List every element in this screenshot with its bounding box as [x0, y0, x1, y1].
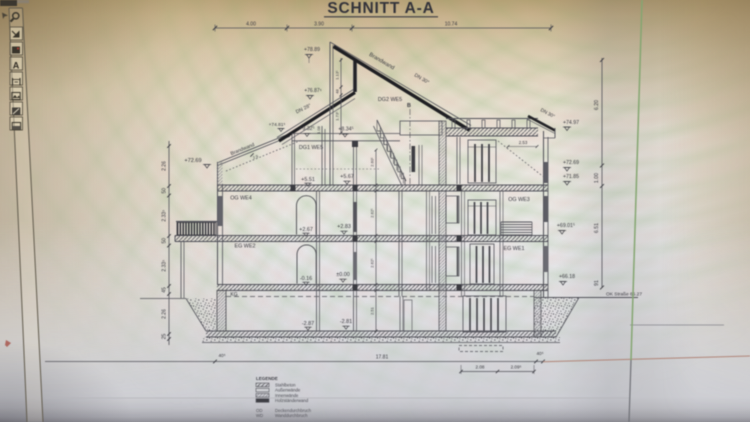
svg-text:40⁵: 40⁵ [536, 351, 543, 356]
svg-text:6.20: 6.20 [594, 100, 600, 110]
svg-text:DN 30°: DN 30° [413, 72, 430, 85]
svg-text:2.33⁵: 2.33⁵ [162, 210, 168, 222]
svg-text:+5.51: +5.51 [301, 177, 315, 183]
svg-text:Holzständerwand: Holzständerwand [275, 398, 309, 403]
svg-text:+2.83: +2.83 [337, 224, 351, 230]
svg-text:DG1 WE5: DG1 WE5 [299, 145, 323, 151]
svg-text:+66.18: +66.18 [559, 274, 575, 280]
svg-text:OG WE4: OG WE4 [230, 196, 252, 202]
svg-text:KG: KG [230, 292, 237, 298]
svg-text:3.90: 3.90 [314, 22, 324, 28]
svg-text:+76.87⁵: +76.87⁵ [304, 88, 322, 94]
svg-text:1.13⁵: 1.13⁵ [335, 70, 340, 80]
svg-text:2.33⁵: 2.33⁵ [162, 260, 168, 272]
svg-text:1.00: 1.00 [594, 173, 600, 183]
svg-text:Wanddurchbruch: Wanddurchbruch [275, 413, 308, 418]
svg-text:±0.00: ±0.00 [336, 272, 349, 278]
svg-text:+74.97: +74.97 [563, 120, 579, 126]
svg-text:40⁵: 40⁵ [218, 353, 225, 358]
svg-text:2.60⁵: 2.60⁵ [370, 157, 375, 167]
svg-text:LEGENDE: LEGENDE [256, 376, 278, 381]
svg-text:1.73⁵: 1.73⁵ [335, 111, 340, 121]
svg-text:EG WE1: EG WE1 [504, 246, 525, 252]
svg-text:-2.87: -2.87 [302, 321, 314, 327]
svg-text:2.08: 2.08 [476, 365, 485, 370]
svg-text:DN 30°: DN 30° [539, 107, 556, 120]
svg-text:+69.01⁵: +69.01⁵ [557, 223, 575, 229]
svg-text:17.81: 17.81 [376, 355, 389, 361]
svg-text:91: 91 [594, 280, 600, 286]
svg-text:+78.89: +78.89 [304, 47, 320, 53]
svg-text:WD: WD [256, 413, 263, 418]
svg-text:50: 50 [162, 188, 168, 194]
svg-text:+5.67: +5.67 [340, 174, 354, 180]
svg-text:+71.85: +71.85 [563, 174, 579, 180]
svg-text:OK Straße 65.27: OK Straße 65.27 [606, 292, 642, 298]
svg-text:2.26: 2.26 [162, 161, 168, 171]
svg-text:-0.16: -0.16 [300, 276, 312, 282]
svg-text:2.09⁵: 2.09⁵ [511, 365, 522, 370]
svg-text:2.53: 2.53 [519, 140, 528, 145]
svg-text:2.62⁵: 2.62⁵ [370, 258, 375, 268]
svg-text:-2.81: -2.81 [340, 319, 352, 325]
svg-text:4.00: 4.00 [246, 22, 256, 28]
svg-text:+9.32⁵: +9.32⁵ [299, 126, 314, 132]
svg-text:6.51: 6.51 [594, 223, 600, 233]
svg-text:2.51: 2.51 [370, 306, 375, 315]
svg-text:+72.69: +72.69 [563, 160, 579, 166]
svg-text:2.26: 2.26 [162, 309, 168, 319]
svg-text:50: 50 [162, 238, 168, 244]
svg-text:2 S: 2 S [252, 154, 259, 160]
svg-text:1.08: 1.08 [316, 125, 321, 134]
svg-text:DG2 WE5: DG2 WE5 [378, 97, 402, 103]
svg-text:+74.81⁵: +74.81⁵ [269, 122, 286, 128]
svg-text:2.62⁵: 2.62⁵ [370, 208, 375, 218]
svg-text:+72.69: +72.69 [184, 158, 201, 164]
svg-text:OG WE3: OG WE3 [508, 197, 530, 203]
svg-text:45: 45 [162, 287, 168, 293]
svg-text:DN 28°: DN 28° [295, 103, 312, 115]
svg-text:48: 48 [335, 89, 340, 94]
svg-text:SCHNITT A-A: SCHNITT A-A [327, 0, 434, 17]
svg-text:B: B [407, 103, 411, 109]
svg-text:+2.67: +2.67 [299, 227, 313, 233]
svg-text:10.74: 10.74 [445, 22, 458, 28]
svg-text:A: A [13, 61, 20, 71]
svg-text:EG WE2: EG WE2 [235, 244, 256, 250]
svg-text:25: 25 [162, 334, 168, 340]
